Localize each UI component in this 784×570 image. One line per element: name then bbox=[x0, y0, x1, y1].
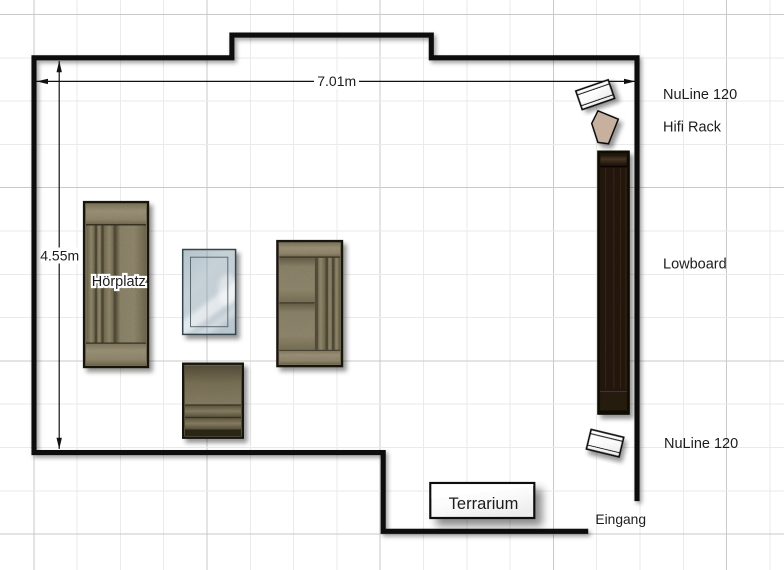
svg-text:Lowboard: Lowboard bbox=[663, 257, 727, 273]
svg-text:Hifi Rack: Hifi Rack bbox=[663, 119, 722, 135]
svg-text:7.01m: 7.01m bbox=[317, 73, 356, 89]
svg-text:4.55m: 4.55m bbox=[40, 247, 79, 263]
svg-text:NuLine 120: NuLine 120 bbox=[663, 87, 737, 103]
svg-text:Terrarium: Terrarium bbox=[449, 495, 519, 513]
svg-text:Eingang: Eingang bbox=[595, 512, 646, 527]
svg-text:Hörplatz: Hörplatz bbox=[92, 274, 146, 290]
svg-text:NuLine 120: NuLine 120 bbox=[664, 436, 738, 452]
